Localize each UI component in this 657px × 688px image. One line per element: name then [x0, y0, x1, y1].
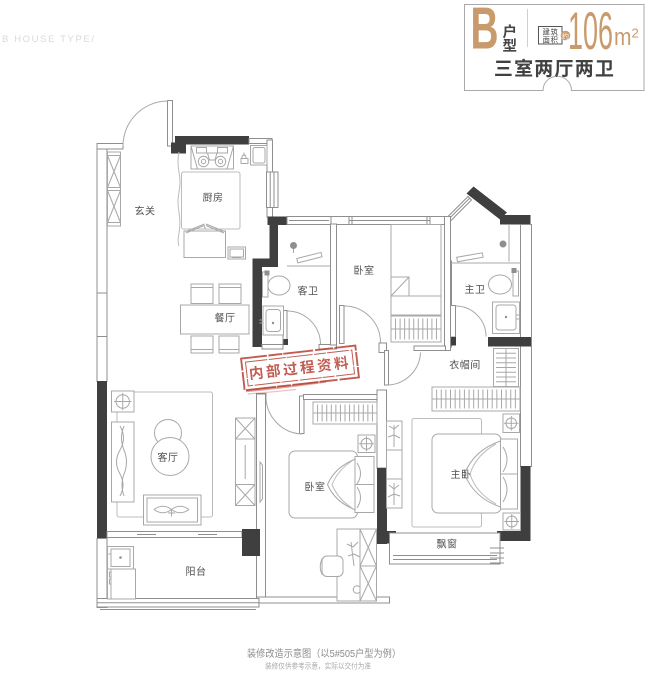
svg-text:阳台: 阳台 — [186, 565, 207, 578]
svg-text:卧室: 卧室 — [354, 264, 375, 277]
svg-text:106: 106 — [568, 2, 613, 61]
svg-text:型: 型 — [503, 38, 518, 55]
svg-text:内部过程资料: 内部过程资料 — [248, 353, 352, 383]
svg-text:厨房: 厨房 — [203, 191, 224, 204]
svg-text:飘窗: 飘窗 — [437, 538, 458, 551]
svg-text:主卫: 主卫 — [465, 284, 486, 296]
svg-text:2: 2 — [632, 26, 639, 41]
svg-text:餐厅: 餐厅 — [215, 312, 236, 325]
svg-text:衣帽间: 衣帽间 — [449, 359, 481, 372]
svg-text:客卫: 客卫 — [298, 285, 319, 298]
svg-text:面积: 面积 — [543, 36, 559, 45]
svg-text:装修改造示意图（以5#505户型为例）: 装修改造示意图（以5#505户型为例） — [247, 647, 401, 660]
svg-text:玄关: 玄关 — [135, 205, 156, 218]
svg-text:B HOUSE TYPE/: B HOUSE TYPE/ — [2, 34, 97, 45]
svg-text:客厅: 客厅 — [158, 451, 179, 464]
svg-text:装修仅供参考示意，实际以交付为准: 装修仅供参考示意，实际以交付为准 — [265, 661, 371, 671]
svg-text:卧室: 卧室 — [305, 481, 326, 494]
svg-text:主卧: 主卧 — [451, 468, 472, 481]
svg-text:m: m — [614, 24, 632, 51]
svg-text:B: B — [471, 0, 499, 62]
svg-text:三室两厅两卫: 三室两厅两卫 — [494, 57, 615, 80]
